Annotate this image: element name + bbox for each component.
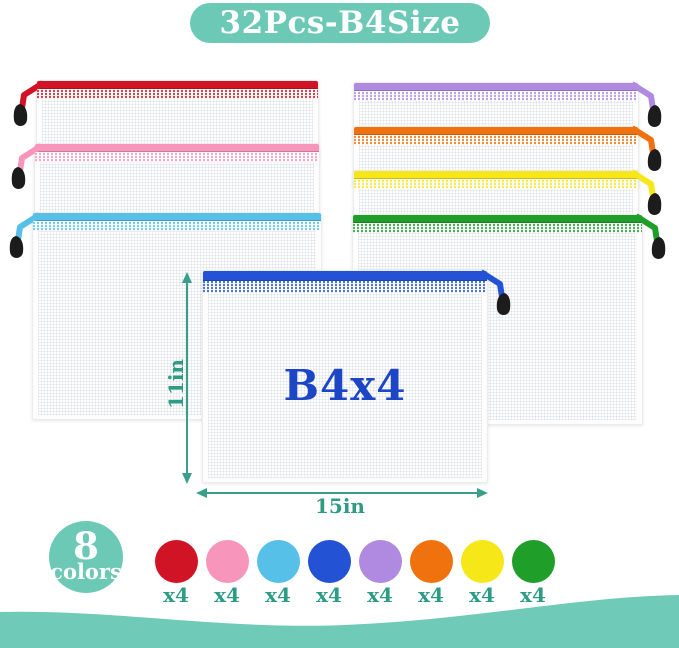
zipper-bar [35,144,319,152]
swatch-dot-icon [257,540,300,583]
size-label: B4x4 [208,293,482,478]
width-dimension-label: 15in [298,494,382,518]
zipper-tape [35,152,319,162]
zipper-bar [353,215,642,223]
zipper-bar [354,171,638,179]
zipper-bar [37,81,318,89]
title-text: 32Pcs-B4Size [220,5,461,41]
zipper-tape [353,223,642,233]
pouch-center-b4: B4x4 [202,270,488,483]
zipper-tape [354,135,638,145]
swatch-dot-icon [359,540,402,583]
zipper-tape [354,179,638,189]
swatch-dot-icon [512,540,555,583]
swatch-dot-icon [461,540,504,583]
zipper-tape [33,221,321,231]
height-dimension-label: 11in [164,358,188,410]
zipper-tape [37,89,318,99]
zipper-bar [354,127,638,135]
swatch-dot-icon [206,540,249,583]
swatch-dot-icon [308,540,351,583]
zipper-bar [203,271,487,281]
product-infographic: 32Pcs-B4Size [0,0,679,648]
zipper-tape [203,281,487,293]
zipper-tape [354,91,638,101]
zipper-bar [33,213,321,221]
title-banner: 32Pcs-B4Size [190,3,490,43]
zipper-bar [354,83,638,91]
bottom-wave-decoration [0,578,679,648]
swatch-dot-icon [155,540,198,583]
swatch-dot-icon [410,540,453,583]
badge-count: 8 [73,532,99,562]
